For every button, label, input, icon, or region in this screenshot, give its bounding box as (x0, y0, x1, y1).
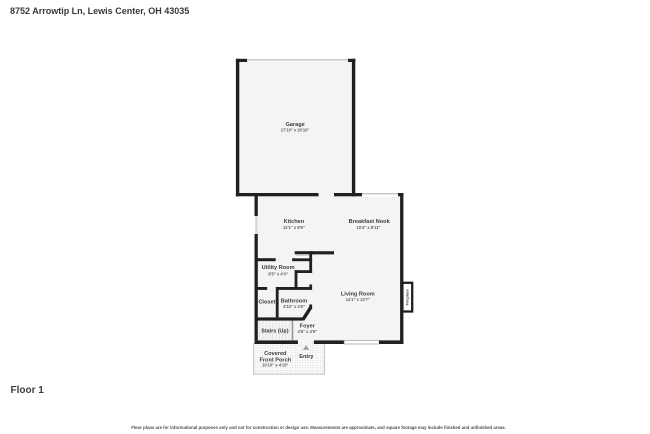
svg-text:4'5" x 4'6": 4'5" x 4'6" (298, 329, 318, 334)
svg-text:12'1" x 9'9": 12'1" x 9'9" (283, 225, 305, 230)
svg-text:17'10" x 20'10": 17'10" x 20'10" (281, 128, 310, 133)
svg-text:Closet: Closet (258, 300, 275, 306)
svg-text:Utility Room: Utility Room (262, 265, 295, 271)
svg-text:8'5" x 4'3": 8'5" x 4'3" (268, 271, 288, 276)
svg-text:14'1" x 13'7": 14'1" x 13'7" (346, 297, 370, 302)
svg-text:4'10" x 4'6": 4'10" x 4'6" (283, 304, 305, 309)
svg-text:Fireplace: Fireplace (405, 289, 409, 305)
svg-text:Entry: Entry (299, 354, 314, 360)
svg-text:10'10" x 4'10": 10'10" x 4'10" (262, 363, 288, 368)
svg-text:Stairs (Up): Stairs (Up) (261, 328, 288, 334)
svg-text:10'4" x 8'11": 10'4" x 8'11" (356, 225, 380, 230)
svg-text:Covered: Covered (264, 351, 287, 357)
